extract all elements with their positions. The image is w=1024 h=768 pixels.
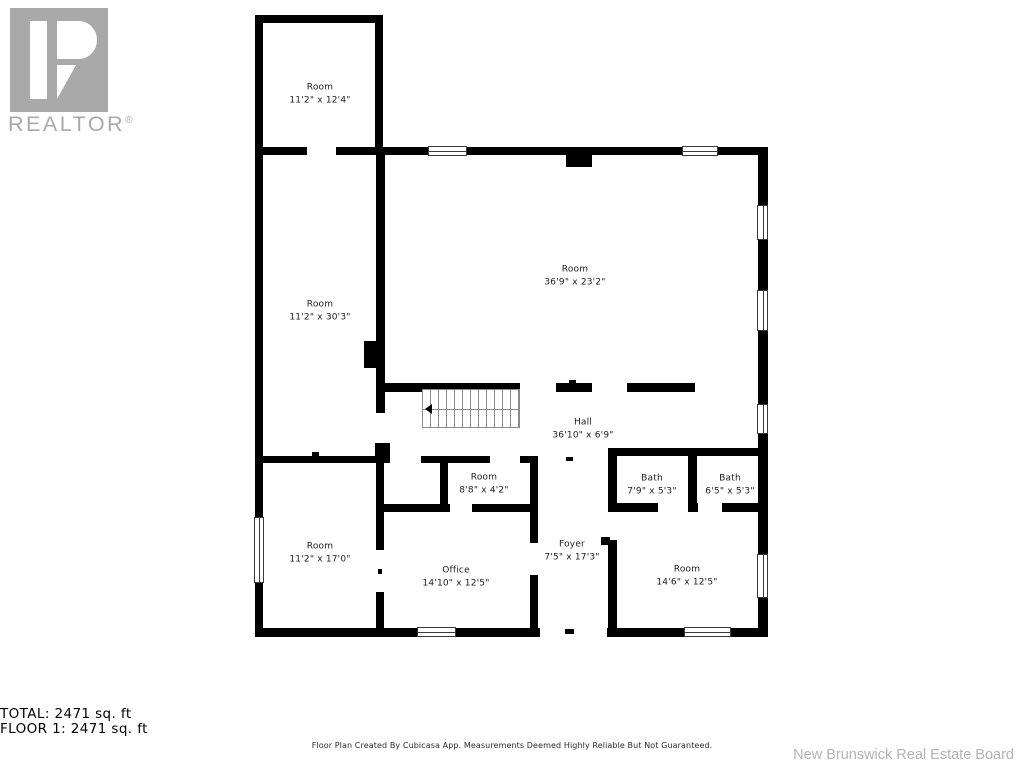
wall-segment [758, 330, 768, 405]
wall-segment [607, 628, 685, 637]
wall-segment [455, 628, 540, 637]
wall-segment [376, 368, 385, 413]
staircase-midline [423, 409, 519, 410]
chimney-block [566, 147, 592, 167]
staircase-direction-arrow [425, 404, 432, 414]
wall-segment [375, 443, 390, 463]
realtor-logo-wordmark: REALTOR® [8, 112, 132, 137]
door-marker [566, 457, 573, 461]
wall-segment [336, 147, 383, 155]
wall-segment [608, 540, 617, 637]
window-symbol [757, 205, 768, 240]
window-symbol [428, 146, 467, 156]
wall-segment [627, 383, 695, 392]
door-marker [565, 629, 574, 634]
door-marker [378, 569, 382, 574]
room-label-tall-left: Room 11'2" x 30'3" [289, 299, 350, 324]
wall-segment [530, 456, 538, 543]
window-symbol [682, 146, 718, 156]
window-symbol [757, 290, 768, 331]
room-label-large: Room 36'9" x 23'2" [544, 264, 605, 289]
wall-segment [383, 147, 428, 155]
wall-segment [440, 463, 448, 505]
wall-segment [384, 504, 450, 512]
wall-segment [758, 459, 768, 555]
hall-label: Hall 36'10" x 6'9" [552, 417, 613, 442]
wall-segment [255, 456, 376, 463]
chimney-block [364, 341, 385, 368]
wall-segment [255, 15, 383, 23]
wall-segment [758, 155, 768, 207]
bath-label-2: Bath 6'5" x 5'3" [705, 473, 754, 498]
office-label: Office 14'10" x 12'5" [422, 565, 489, 590]
room-label-bottom-right: Room 14'6" x 12'5" [656, 564, 717, 589]
wall-segment [375, 15, 383, 155]
bath-label-1: Bath 7'9" x 5'3" [627, 473, 676, 498]
wall-segment [608, 503, 658, 512]
window-symbol [417, 627, 456, 637]
wall-segment [758, 597, 768, 637]
foyer-label: Foyer 7'5" x 17'3" [544, 539, 599, 564]
window-symbol [254, 517, 264, 583]
window-symbol [757, 554, 768, 598]
room-label-small: Room 8'8" x 4'2" [459, 472, 508, 497]
floor-area-text: FLOOR 1: 2471 sq. ft [0, 721, 1024, 737]
registered-mark: ® [125, 115, 132, 126]
wall-segment [421, 456, 490, 463]
wall-segment [556, 383, 592, 392]
room-label-top-left: Room 11'2" x 12'4" [289, 82, 350, 107]
wall-segment [255, 628, 418, 637]
wall-segment [376, 463, 384, 550]
window-symbol [757, 404, 768, 434]
floorplan-page: REALTOR® [0, 0, 1024, 768]
wall-segment [376, 155, 385, 343]
wall-segment [718, 147, 768, 155]
room-label-bottom-left: Room 11'2" x 17'0" [289, 541, 350, 566]
wall-segment [688, 503, 698, 512]
realtor-logo-icon [10, 8, 108, 116]
total-area-text: TOTAL: 2471 sq. ft [0, 706, 1024, 722]
wall-segment [255, 147, 307, 155]
door-marker [569, 380, 576, 384]
door-marker [601, 537, 610, 545]
window-symbol [684, 627, 731, 637]
real-estate-board-attribution: New Brunswick Real Estate Board [793, 747, 1014, 763]
staircase [422, 389, 520, 428]
wall-segment [472, 504, 534, 512]
wall-segment [758, 240, 768, 292]
door-marker [312, 452, 319, 456]
